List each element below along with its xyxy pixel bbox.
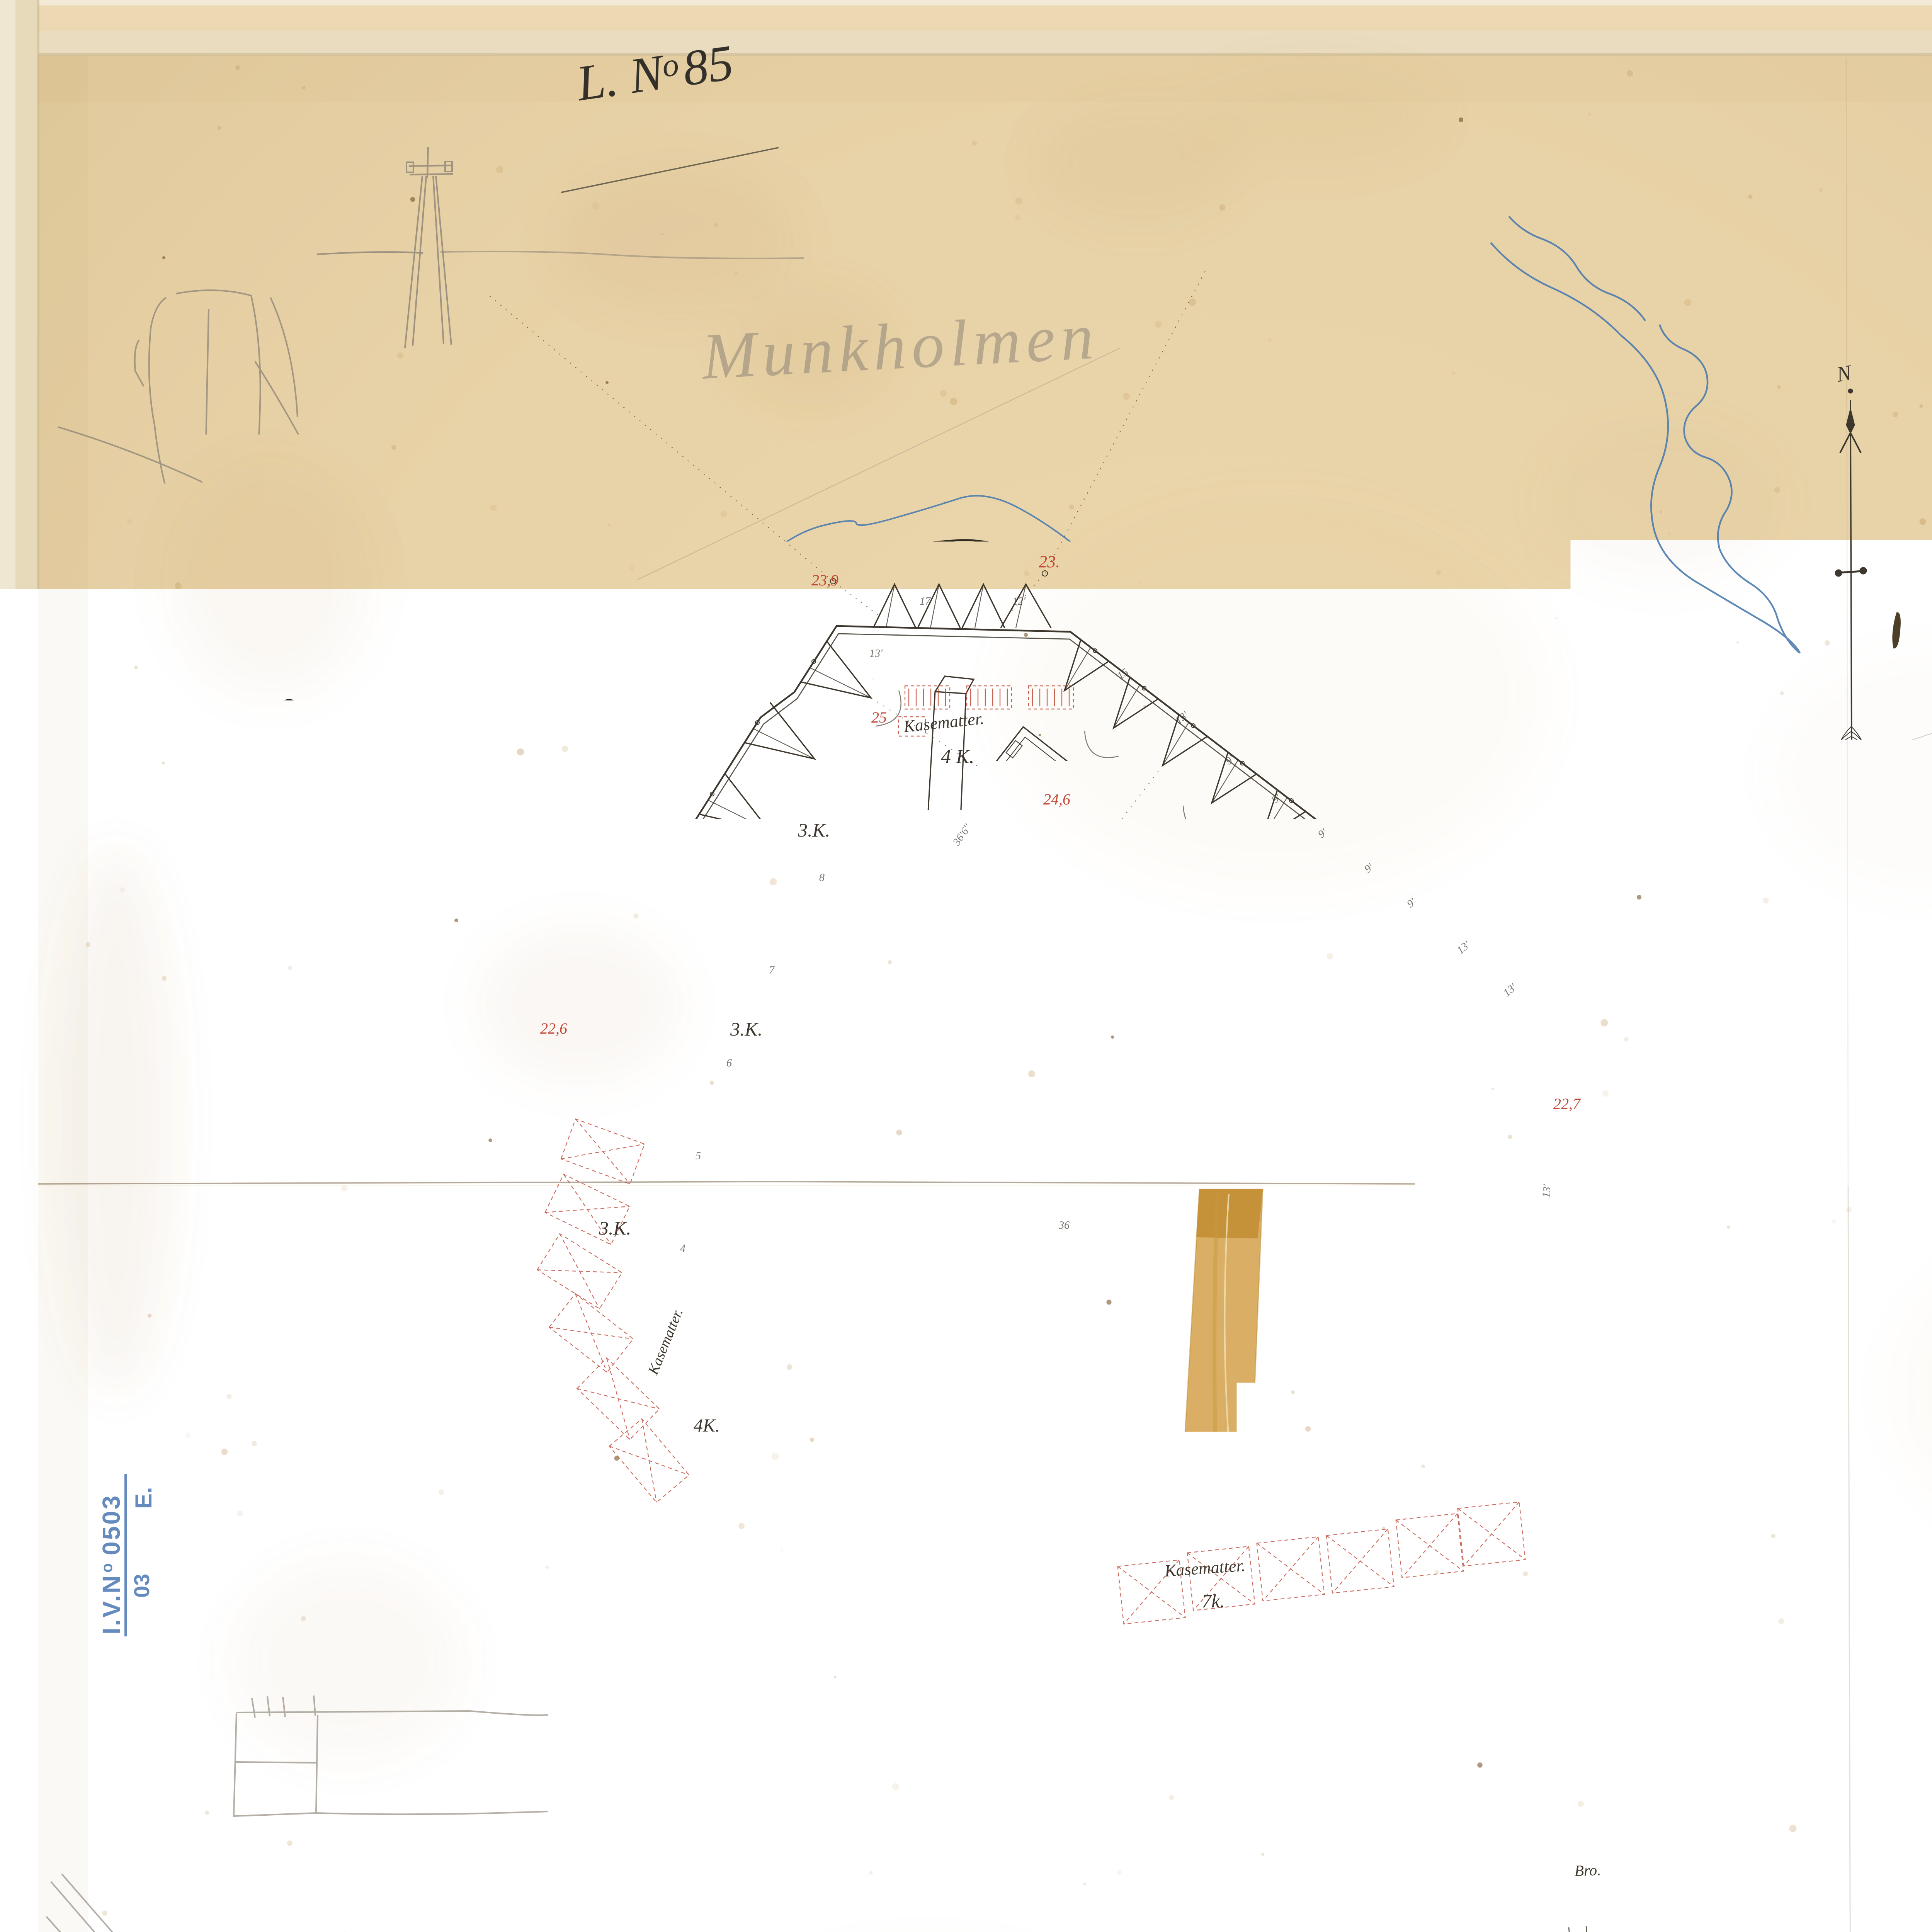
svg-text:31: 31 (888, 1737, 900, 1749)
svg-text:4.: 4. (1737, 1901, 1744, 1911)
svg-text:30: 30 (1476, 1515, 1488, 1529)
svg-text:8: 8 (819, 872, 825, 884)
svg-text:3: 3 (1736, 1911, 1742, 1921)
svg-text:13: 13 (1050, 1709, 1062, 1722)
svg-text:L.: L. (228, 1478, 252, 1497)
svg-text:o: o (99, 1563, 116, 1573)
svg-text:3.K.: 3.K. (798, 819, 830, 841)
svg-text:Brönd: Brönd (1060, 1281, 1090, 1295)
svg-text:23,9: 23,9 (811, 571, 838, 589)
svg-text:24,2: 24,2 (750, 1416, 778, 1434)
svg-text:3.K.: 3.K. (730, 1018, 762, 1040)
svg-text:0503: 0503 (97, 1494, 125, 1555)
svg-text:13': 13' (1540, 1184, 1553, 1198)
svg-text:8': 8' (1532, 1421, 1545, 1430)
svg-text:9: 9 (1264, 1542, 1271, 1556)
svg-text:4: 4 (680, 1243, 685, 1255)
svg-text:7: 7 (769, 964, 775, 976)
svg-text:16': 16' (974, 1266, 987, 1278)
svg-text:E.: E. (131, 1487, 156, 1509)
svg-text:22,7: 22,7 (1553, 1095, 1581, 1112)
svg-text:6: 6 (726, 1057, 732, 1069)
svg-text:5 K.: 5 K. (810, 1640, 839, 1660)
svg-text:Krudtkjælder.: Krudtkjælder. (852, 1053, 942, 1071)
svg-text:I.V.N: I.V.N (97, 1574, 125, 1634)
svg-text:Port: Port (1334, 1525, 1362, 1543)
svg-text:I.V.N: I.V.N (196, 1563, 224, 1623)
svg-text:24: 24 (900, 1643, 915, 1659)
svg-text:12': 12' (1012, 595, 1026, 607)
svg-text:8: 8 (1320, 1670, 1327, 1686)
svg-text:03: 03 (129, 1574, 154, 1598)
svg-text:23.: 23. (1039, 552, 1060, 571)
svg-text:33: 33 (1004, 1304, 1015, 1316)
svg-text:36: 36 (1058, 1219, 1070, 1231)
svg-text:5: 5 (696, 1150, 701, 1162)
svg-text:22,6: 22,6 (540, 1020, 567, 1037)
svg-text:4K.: 4K. (694, 1415, 720, 1436)
svg-text:22,9: 22,9 (509, 1337, 536, 1354)
svg-text:4 K.: 4 K. (941, 746, 975, 768)
svg-text:2: 2 (784, 1675, 790, 1687)
svg-text:S.: S. (1842, 794, 1861, 819)
svg-text:24.: 24. (1406, 1304, 1428, 1323)
svg-text:0573: 0573 (196, 1483, 224, 1544)
svg-text:24,9: 24,9 (935, 1570, 959, 1585)
svg-text:21: 21 (1551, 1588, 1565, 1603)
svg-text:6 K.: 6 K. (1020, 860, 1054, 882)
svg-text:13': 13' (869, 648, 883, 660)
svg-text:5.: 5. (1737, 1891, 1744, 1901)
svg-text:Bro.: Bro. (1574, 1861, 1601, 1879)
svg-text:8': 8' (1534, 1498, 1547, 1507)
svg-text:22,1: 22,1 (856, 1831, 884, 1849)
svg-text:24,6: 24,6 (1043, 791, 1070, 808)
svg-text:Baad: Baad (1276, 1739, 1312, 1760)
svg-text:17': 17' (920, 595, 933, 607)
svg-text:13': 13' (1532, 1338, 1546, 1353)
svg-text:14': 14' (1536, 1261, 1549, 1276)
svg-text:30: 30 (1027, 1351, 1039, 1363)
svg-text:med: med (886, 1032, 909, 1046)
svg-text:3: 3 (656, 1335, 662, 1347)
svg-text:Vedbod.: Vedbod. (988, 937, 1046, 960)
svg-text:4K.: 4K. (1463, 1019, 1489, 1040)
svg-text:Nöst.: Nöst. (1280, 1788, 1316, 1809)
svg-text:12: 12 (1444, 1643, 1456, 1656)
svg-text:6K.: 6K. (1430, 1343, 1458, 1365)
svg-text:04: 04 (228, 1562, 252, 1586)
svg-text:1.: 1. (1737, 1930, 1744, 1932)
svg-text:Thaarn: Thaarn (872, 1005, 922, 1024)
svg-text:17,7: 17,7 (1122, 1353, 1153, 1372)
svg-text:2: 2 (1737, 1920, 1742, 1930)
svg-text:o: o (197, 1552, 214, 1561)
svg-text:25: 25 (871, 709, 887, 726)
svg-text:3.K.: 3.K. (599, 1217, 631, 1239)
